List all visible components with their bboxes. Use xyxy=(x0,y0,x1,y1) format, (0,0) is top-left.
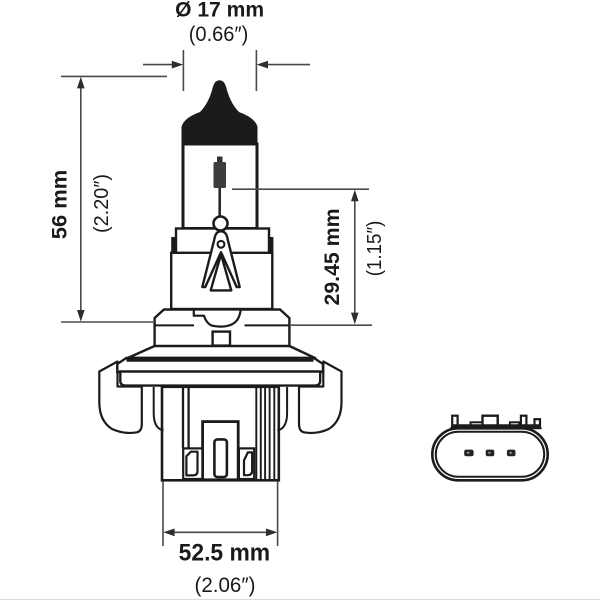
svg-text:(1.15″): (1.15″) xyxy=(363,221,386,277)
svg-text:29.45 mm: 29.45 mm xyxy=(321,209,344,306)
svg-text:(2.20″): (2.20″) xyxy=(90,174,113,233)
svg-text:52.5 mm: 52.5 mm xyxy=(179,540,271,567)
svg-text:(0.66″): (0.66″) xyxy=(189,23,249,46)
svg-text:(2.06″): (2.06″) xyxy=(195,573,256,597)
svg-text:Ø 17 mm: Ø 17 mm xyxy=(175,0,264,22)
svg-text:56 mm: 56 mm xyxy=(48,170,71,240)
